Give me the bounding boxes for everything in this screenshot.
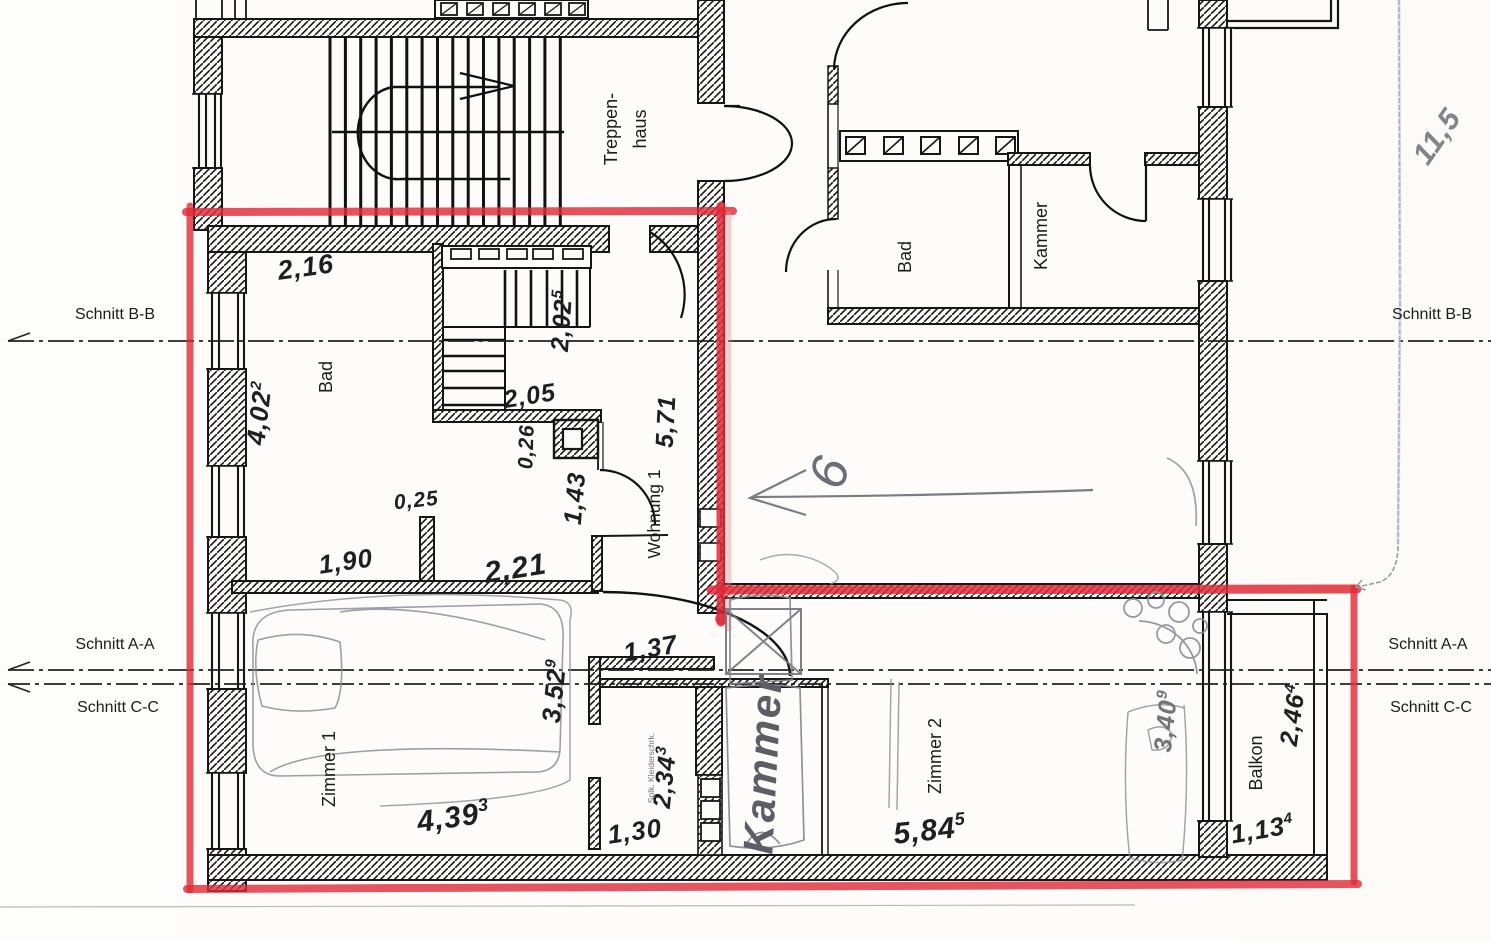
svg-text:Schnitt C-C: Schnitt C-C [77, 699, 159, 716]
svg-text:Kammer: Kammer [734, 672, 790, 855]
svg-text:Schnitt C-C: Schnitt C-C [1390, 699, 1472, 716]
svg-text:Wohnung 1: Wohnung 1 [644, 469, 664, 558]
svg-text:1,43: 1,43 [559, 471, 591, 526]
svg-text:0,26: 0,26 [514, 424, 539, 470]
svg-text:Kammer: Kammer [1031, 202, 1051, 270]
svg-text:Zimmer 2: Zimmer 2 [925, 718, 945, 794]
svg-text:Schnitt A-A: Schnitt A-A [1388, 636, 1467, 653]
svg-text:Treppen-: Treppen- [601, 93, 621, 165]
svg-text:haus: haus [630, 109, 650, 148]
svg-text:Schnitt B-B: Schnitt B-B [1392, 306, 1472, 323]
svg-text:0,25: 0,25 [393, 487, 440, 515]
svg-text:Zimmer 1: Zimmer 1 [319, 731, 339, 807]
svg-text:Splk. Kleiderschrk.: Splk. Kleiderschrk. [646, 733, 656, 803]
svg-text:Schnitt B-B: Schnitt B-B [75, 306, 155, 323]
svg-text:Schnitt A-A: Schnitt A-A [75, 636, 154, 653]
svg-text:5,71: 5,71 [651, 395, 682, 449]
svg-text:Balkon: Balkon [1246, 735, 1266, 790]
svg-text:Bad: Bad [895, 241, 915, 273]
svg-text:Bad: Bad [316, 361, 336, 393]
